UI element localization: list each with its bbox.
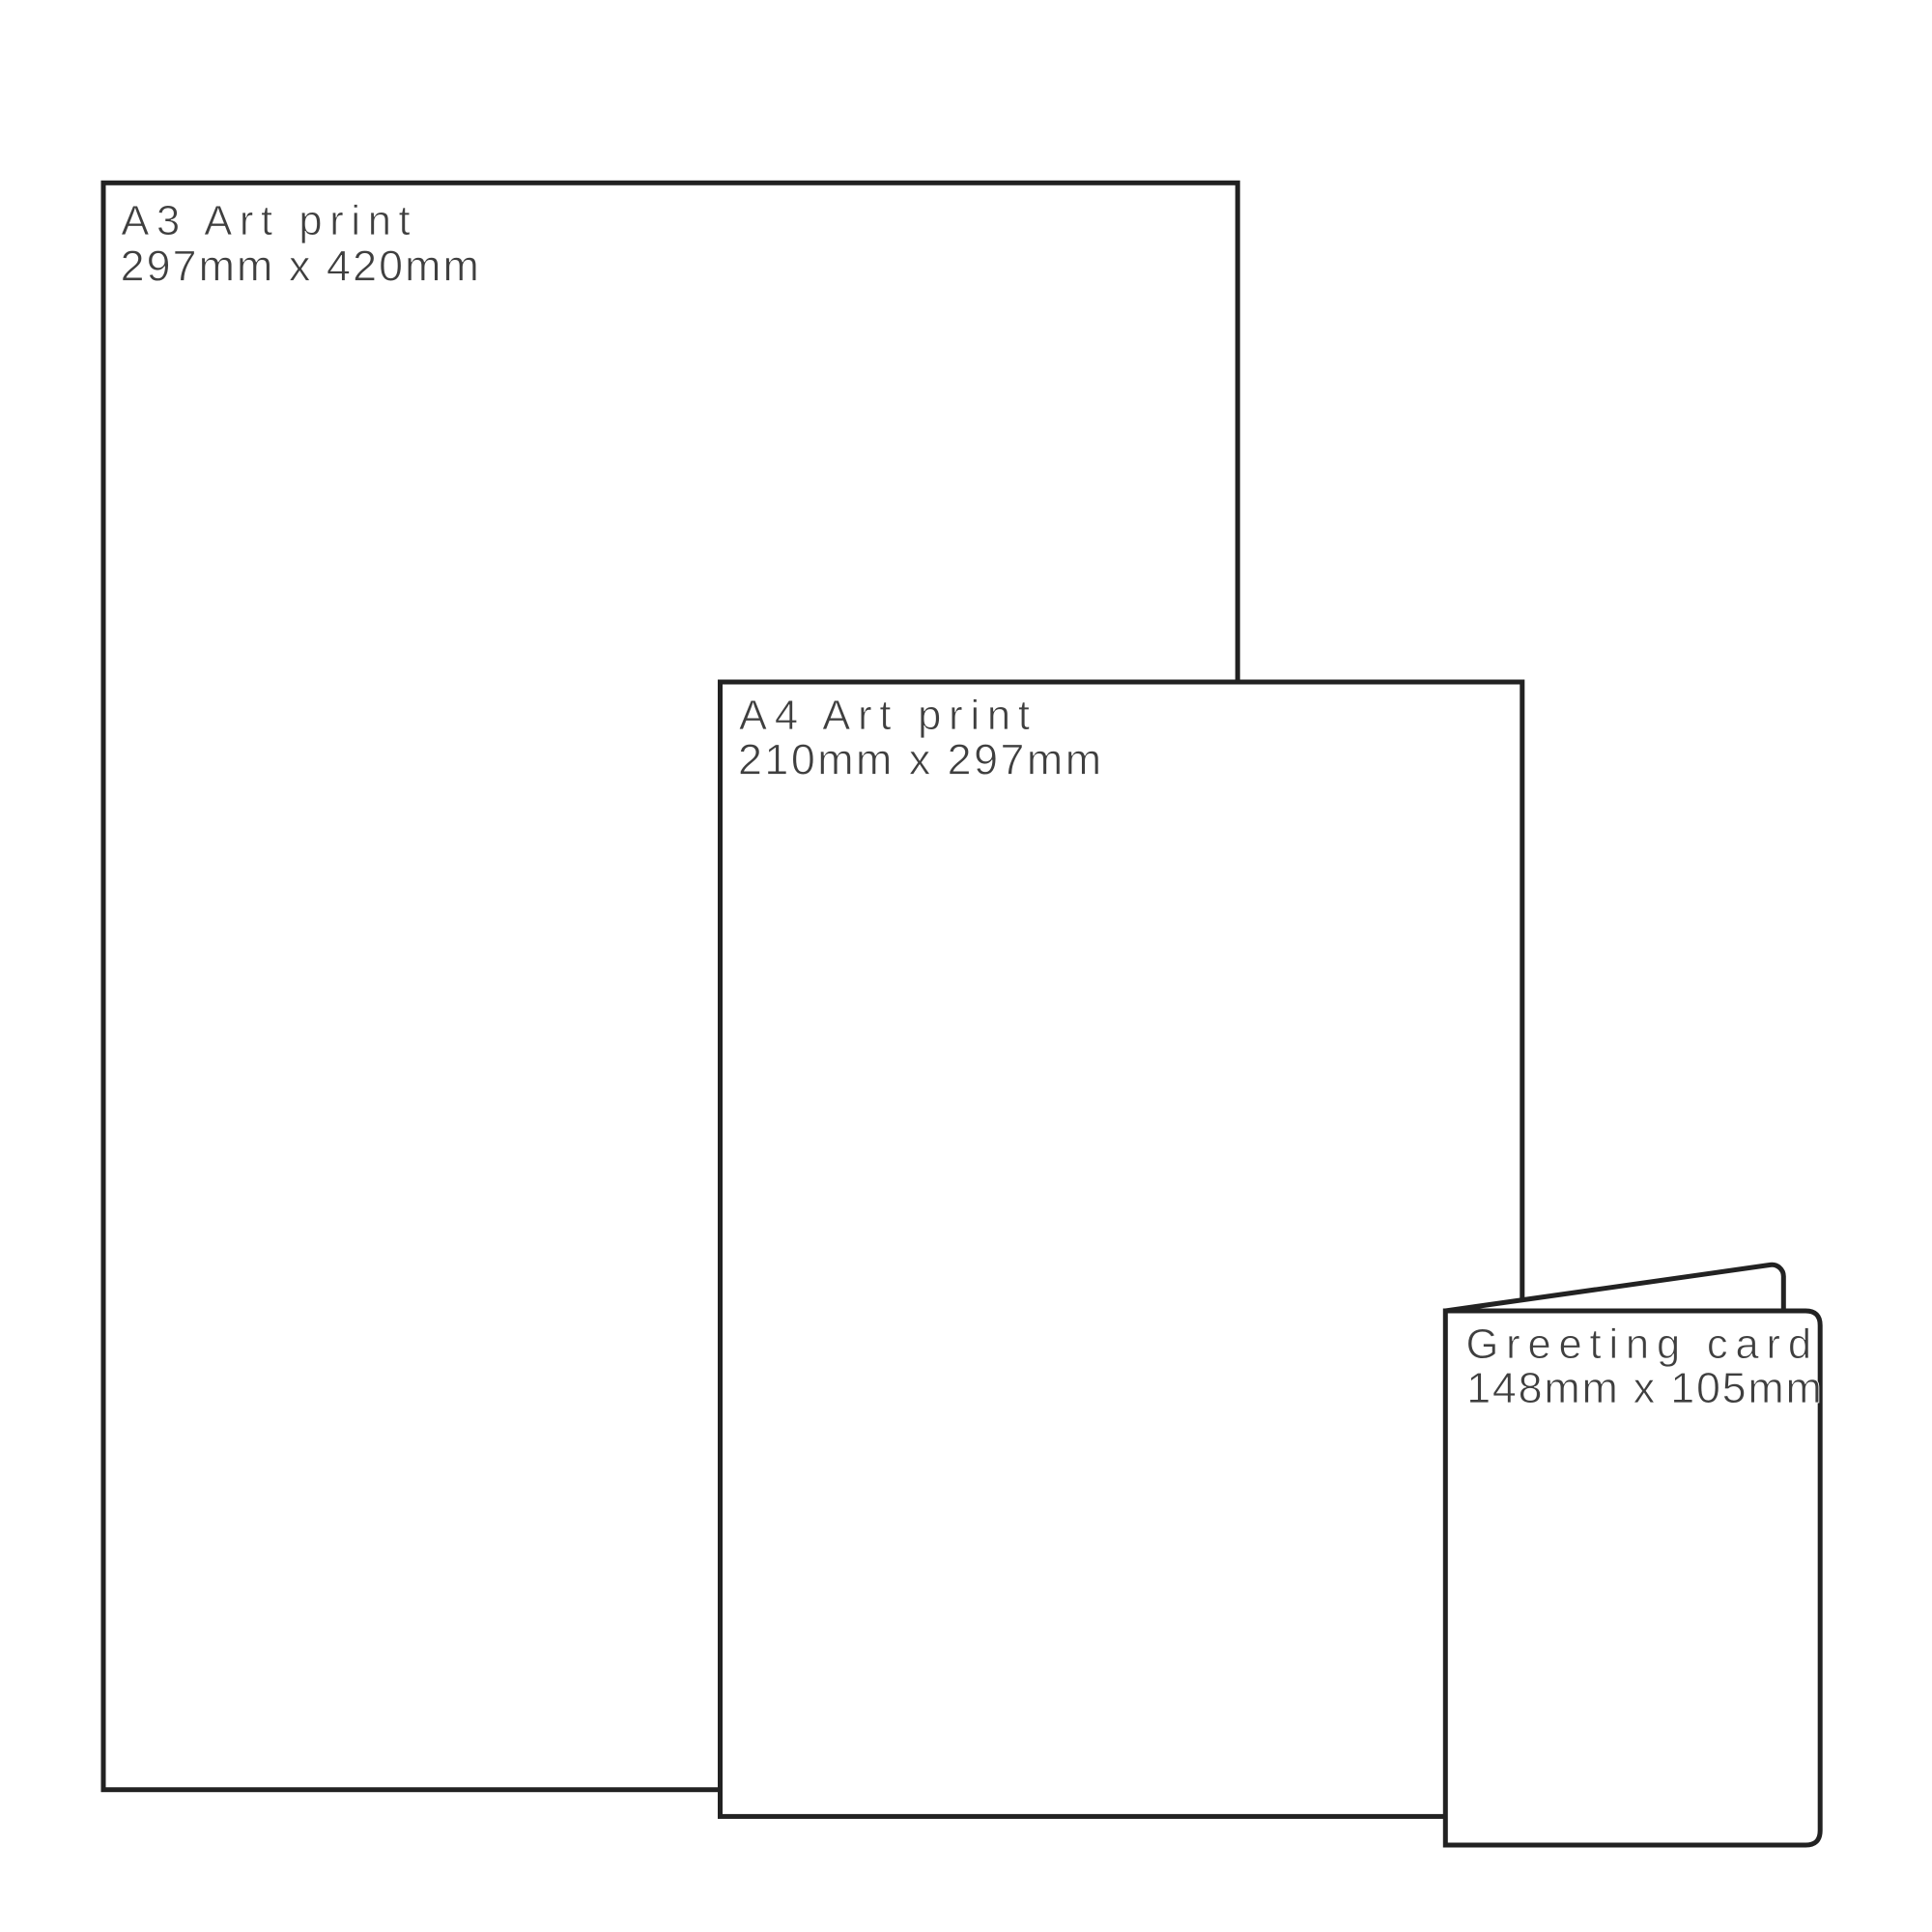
svg-text:210mm x 297mm: 210mm x 297mm [738,736,1104,784]
svg-text:A4 Art print: A4 Art print [739,693,1037,739]
svg-text:Greeting card: Greeting card [1466,1321,1819,1368]
svg-text:297mm x 420mm: 297mm x 420mm [121,242,481,291]
svg-text:A3 Art print: A3 Art print [121,198,417,244]
svg-text:148mm x 105mm: 148mm x 105mm [1466,1364,1823,1412]
